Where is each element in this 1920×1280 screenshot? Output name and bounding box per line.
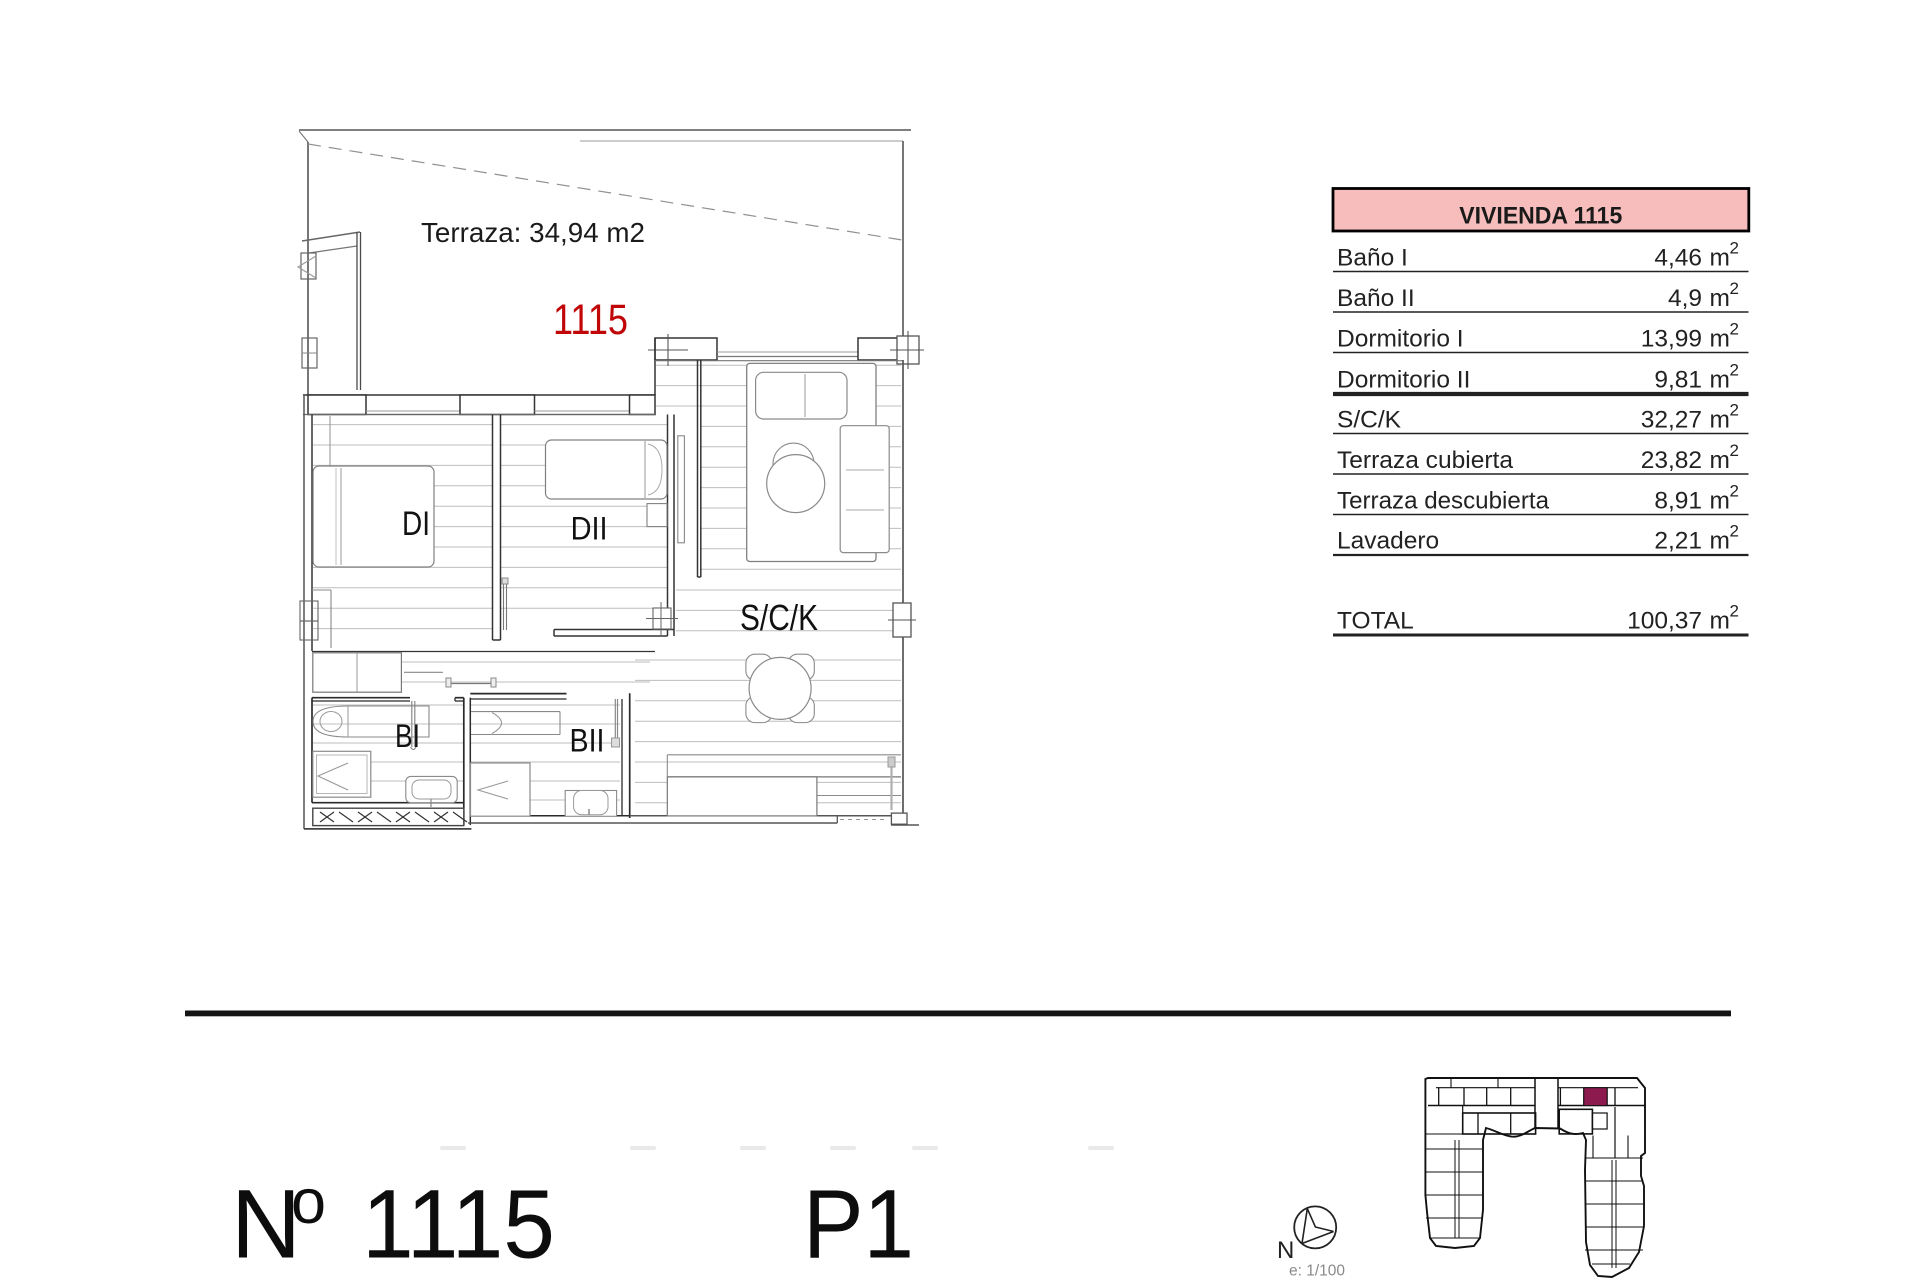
svg-text:m: m (1710, 326, 1730, 353)
svg-text:m: m (1710, 245, 1730, 272)
svg-text:m: m (1710, 285, 1730, 312)
svg-text:13,99: 13,99 (1641, 326, 1702, 353)
svg-text:e: 1/100: e: 1/100 (1289, 1263, 1345, 1280)
svg-text:4,46: 4,46 (1654, 245, 1702, 272)
svg-text:8,91: 8,91 (1654, 488, 1702, 515)
svg-text:m: m (1710, 407, 1730, 434)
svg-text:m: m (1710, 528, 1730, 555)
svg-text:Terraza: 34,94 m2: Terraza: 34,94 m2 (421, 217, 645, 248)
svg-text:2: 2 (1730, 602, 1739, 621)
svg-text:m: m (1710, 447, 1730, 474)
svg-text:DII: DII (571, 511, 608, 547)
svg-text:32,27: 32,27 (1641, 407, 1702, 434)
svg-text:o: o (291, 1167, 326, 1237)
svg-text:2: 2 (1730, 522, 1739, 541)
svg-text:23,82: 23,82 (1641, 447, 1702, 474)
svg-text:Baño II: Baño II (1337, 285, 1415, 312)
svg-text:P1: P1 (803, 1170, 914, 1279)
svg-text:DI: DI (402, 505, 430, 543)
svg-text:Baño I: Baño I (1337, 245, 1408, 272)
svg-text:Dormitorio II: Dormitorio II (1337, 367, 1470, 394)
svg-text:2: 2 (1730, 239, 1739, 258)
svg-text:N: N (1277, 1237, 1294, 1264)
svg-text:BI: BI (395, 718, 420, 754)
svg-text:m: m (1710, 488, 1730, 515)
svg-text:2: 2 (1730, 401, 1739, 420)
svg-text:S/C/K: S/C/K (740, 597, 818, 638)
svg-text:2: 2 (1730, 320, 1739, 339)
svg-text:Terraza descubierta: Terraza descubierta (1337, 488, 1549, 515)
svg-text:TOTAL: TOTAL (1337, 608, 1414, 635)
svg-text:2: 2 (1730, 361, 1739, 380)
svg-text:Terraza cubierta: Terraza cubierta (1337, 447, 1513, 474)
svg-text:2: 2 (1730, 441, 1739, 460)
svg-text:2: 2 (1730, 482, 1739, 501)
svg-text:1115: 1115 (553, 296, 628, 344)
svg-text:BII: BII (570, 722, 605, 758)
svg-text:100,37: 100,37 (1627, 608, 1702, 635)
svg-text:S/C/K: S/C/K (1337, 407, 1402, 434)
svg-text:m: m (1710, 367, 1730, 394)
svg-text:Dormitorio I: Dormitorio I (1337, 326, 1464, 353)
svg-text:2,21: 2,21 (1654, 528, 1702, 555)
svg-text:2: 2 (1730, 279, 1739, 298)
svg-text:1115: 1115 (362, 1170, 555, 1279)
svg-text:4,9: 4,9 (1668, 285, 1702, 312)
svg-text:Lavadero: Lavadero (1337, 528, 1439, 555)
svg-text:9,81: 9,81 (1654, 367, 1702, 394)
svg-text:m: m (1710, 608, 1730, 635)
svg-text:VIVIENDA 1115: VIVIENDA 1115 (1459, 203, 1622, 230)
